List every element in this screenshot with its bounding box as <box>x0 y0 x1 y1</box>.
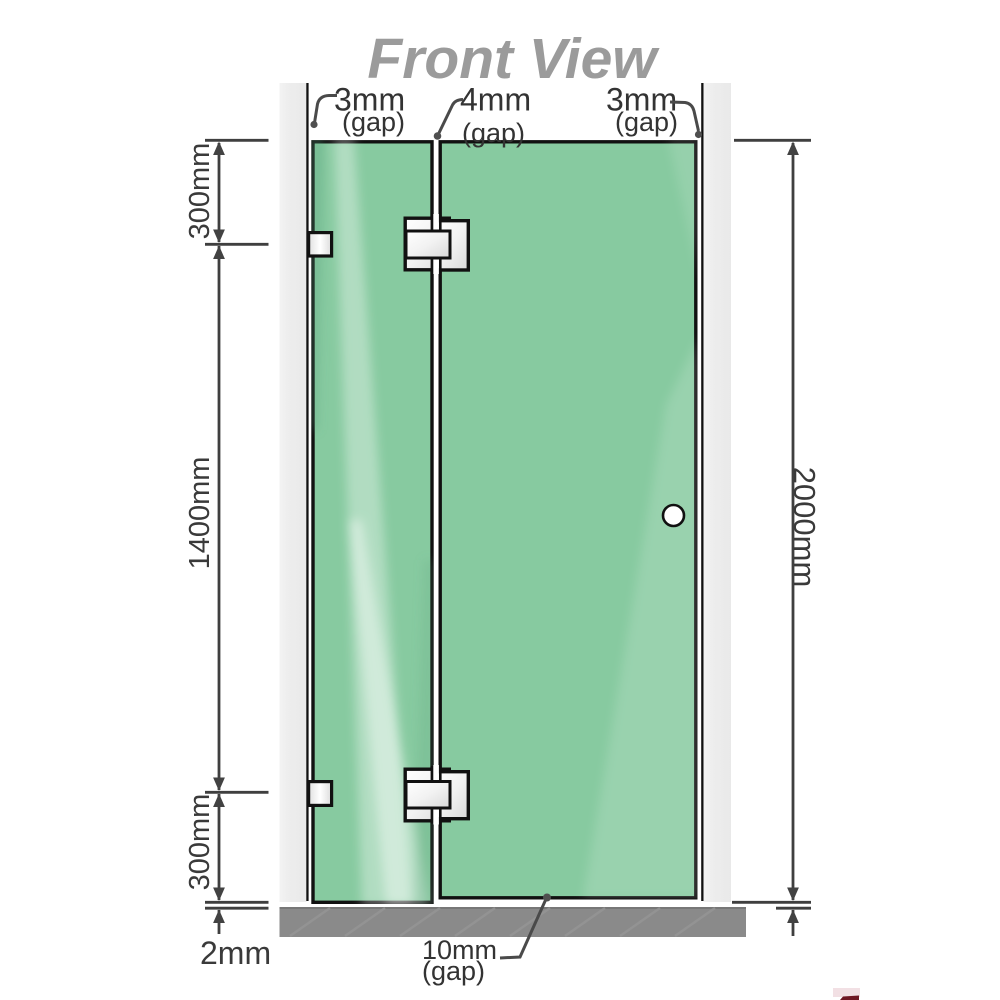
svg-text:300mm: 300mm <box>184 143 216 240</box>
svg-text:(gap): (gap) <box>462 118 525 148</box>
svg-text:300mm: 300mm <box>184 794 216 891</box>
svg-text:1400mm: 1400mm <box>184 457 216 570</box>
svg-text:Front View: Front View <box>367 27 660 91</box>
svg-text:2mm: 2mm <box>200 935 271 971</box>
svg-text:2000mm: 2000mm <box>787 467 822 588</box>
svg-text:(gap): (gap) <box>422 956 485 986</box>
svg-text:(gap): (gap) <box>615 107 678 137</box>
svg-text:(gap): (gap) <box>342 107 405 137</box>
